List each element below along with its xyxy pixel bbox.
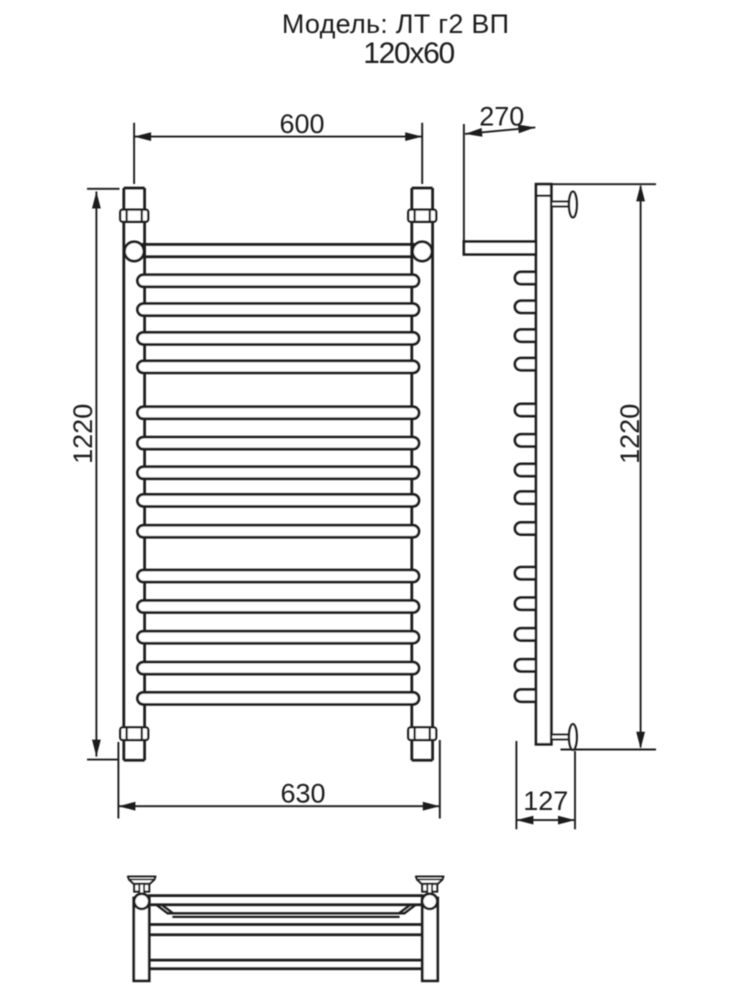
svg-text:120x60: 120x60 <box>363 37 454 70</box>
svg-text:270: 270 <box>479 101 524 131</box>
svg-text:127: 127 <box>523 786 568 816</box>
svg-text:1220: 1220 <box>68 404 98 464</box>
svg-text:Модель: ЛТ г2 ВП: Модель: ЛТ г2 ВП <box>282 9 509 39</box>
svg-text:1220: 1220 <box>615 404 645 464</box>
svg-text:600: 600 <box>279 109 324 139</box>
svg-text:630: 630 <box>280 779 325 809</box>
